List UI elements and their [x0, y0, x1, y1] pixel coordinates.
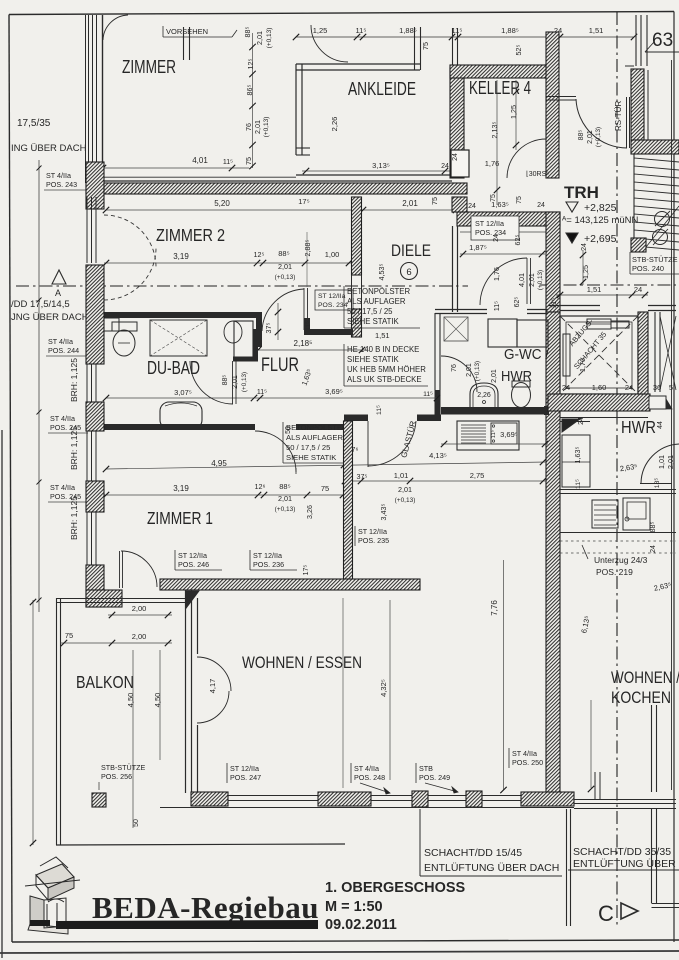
- svg-text:24: 24: [625, 383, 633, 392]
- svg-text:12⁵: 12⁵: [246, 58, 255, 69]
- svg-text:09.02.2011: 09.02.2011: [325, 917, 397, 933]
- svg-text:2,00: 2,00: [132, 632, 147, 641]
- svg-text:Unterzug 24/3: Unterzug 24/3: [594, 555, 648, 565]
- svg-text:11⁵: 11⁵: [551, 298, 558, 308]
- svg-text:1,60: 1,60: [592, 383, 607, 392]
- svg-text:11⁵: 11⁵: [575, 479, 582, 489]
- svg-text:11⁵: 11⁵: [305, 321, 312, 331]
- svg-text:2,01: 2,01: [255, 31, 264, 45]
- svg-text:4,95: 4,95: [211, 459, 227, 468]
- svg-text:50: 50: [285, 426, 292, 434]
- svg-text:88⁵: 88⁵: [578, 130, 585, 141]
- svg-text:37⁵: 37⁵: [264, 322, 273, 333]
- svg-text:STB: STB: [419, 764, 433, 773]
- svg-text:1,51: 1,51: [589, 26, 604, 35]
- svg-text:ALS AUFLAGER: ALS AUFLAGER: [347, 297, 406, 306]
- svg-text:(+0,13): (+0,13): [275, 274, 296, 281]
- svg-text:44: 44: [657, 421, 664, 429]
- svg-text:2,26: 2,26: [330, 117, 339, 132]
- svg-text:(+0,13): (+0,13): [537, 270, 544, 290]
- svg-text:3,07⁵: 3,07⁵: [174, 388, 192, 397]
- svg-text:2,01: 2,01: [466, 363, 473, 377]
- svg-text:ANKLEIDE: ANKLEIDE: [348, 79, 416, 99]
- svg-text:(+0,13): (+0,13): [266, 28, 273, 49]
- svg-text:BETONPOLSTER: BETONPOLSTER: [286, 423, 348, 432]
- svg-text:1,88⁵: 1,88⁵: [501, 26, 519, 35]
- svg-text:1,76: 1,76: [578, 358, 587, 372]
- svg-text:24: 24: [650, 545, 657, 553]
- svg-text:2,18⁵: 2,18⁵: [294, 339, 313, 348]
- svg-text:POS. 244: POS. 244: [48, 346, 79, 355]
- svg-text:11⁵: 11⁵: [376, 405, 383, 415]
- svg-text:50 / 17,5 / 25: 50 / 17,5 / 25: [286, 443, 330, 452]
- svg-text:ST 12/IIa: ST 12/IIa: [475, 219, 504, 228]
- svg-text:M = 1:50: M = 1:50: [325, 899, 383, 915]
- svg-text:24: 24: [578, 417, 585, 425]
- svg-text:WOHNEN / ESSEN: WOHNEN / ESSEN: [242, 653, 362, 672]
- svg-text:88⁵: 88⁵: [243, 26, 252, 37]
- svg-text:1,51: 1,51: [375, 331, 390, 340]
- svg-text:75: 75: [516, 196, 523, 204]
- svg-text:11⁵: 11⁵: [257, 389, 267, 396]
- svg-text:52⁵: 52⁵: [514, 44, 523, 55]
- svg-text:75: 75: [244, 157, 253, 165]
- svg-text:SIEHE STATIK: SIEHE STATIK: [286, 453, 336, 462]
- svg-text:18⁵: 18⁵: [654, 478, 661, 489]
- svg-text:(+0,13): (+0,13): [275, 506, 296, 513]
- svg-text:ZIMMER: ZIMMER: [122, 57, 176, 77]
- svg-text:G-WC /: G-WC /: [504, 346, 550, 363]
- svg-text:76: 76: [451, 364, 458, 372]
- svg-text:ST 4/IIa: ST 4/IIa: [46, 171, 71, 180]
- svg-text:STB-STÜTZE: STB-STÜTZE: [101, 763, 146, 772]
- svg-text:RS-TÜR: RS-TÜR: [614, 101, 623, 131]
- svg-text:ZIMMER 1: ZIMMER 1: [147, 508, 213, 528]
- svg-text:3,69⁵: 3,69⁵: [500, 430, 518, 439]
- svg-text:POS. 243: POS. 243: [46, 180, 77, 189]
- svg-text:17⁵: 17⁵: [303, 565, 310, 576]
- svg-text:75: 75: [430, 197, 439, 205]
- svg-text:FLUR: FLUR: [261, 354, 299, 376]
- svg-text:HWR: HWR: [501, 368, 532, 385]
- svg-text:ST 4/IIa: ST 4/IIa: [50, 483, 75, 492]
- svg-text:88⁵: 88⁵: [222, 375, 229, 386]
- svg-text:17⁵: 17⁵: [298, 197, 309, 206]
- svg-text:3,69⁵: 3,69⁵: [325, 387, 343, 396]
- svg-text:+2,695: +2,695: [584, 233, 617, 245]
- svg-text:1,25: 1,25: [581, 265, 590, 279]
- svg-text:ZIMMER 2: ZIMMER 2: [156, 225, 225, 245]
- svg-text:SIEHE STATIK: SIEHE STATIK: [347, 317, 399, 326]
- svg-text:1,01: 1,01: [394, 471, 409, 480]
- svg-text:KOCHEN: KOCHEN: [611, 688, 671, 707]
- svg-text:3,19: 3,19: [173, 484, 189, 493]
- svg-text:/DD 17,5/14,5: /DD 17,5/14,5: [11, 299, 70, 310]
- svg-text:POS. 249: POS. 249: [419, 773, 450, 782]
- svg-text:3,13⁵: 3,13⁵: [372, 161, 390, 170]
- svg-text:4,01: 4,01: [192, 156, 208, 165]
- svg-text:WOHNEN /: WOHNEN /: [611, 668, 679, 687]
- svg-text:ST 12/IIa: ST 12/IIa: [358, 527, 387, 536]
- svg-text:JNG ÜBER DACH: JNG ÜBER DACH: [11, 312, 89, 323]
- svg-text:2,01: 2,01: [398, 485, 412, 494]
- svg-text:BRH: 1,125: BRH: 1,125: [69, 426, 79, 470]
- svg-text:ST 12/IIa: ST 12/IIa: [253, 551, 282, 560]
- svg-text:2,01: 2,01: [491, 369, 498, 383]
- svg-text:TRH: TRH: [564, 183, 599, 202]
- svg-text:POS. 234: POS. 234: [318, 302, 348, 309]
- svg-text:24: 24: [493, 234, 500, 242]
- svg-text:ST 4/IIa: ST 4/IIa: [512, 749, 537, 758]
- svg-text:POS. 248: POS. 248: [354, 773, 385, 782]
- svg-text:4,13⁵: 4,13⁵: [429, 451, 447, 460]
- svg-text:24: 24: [452, 153, 459, 161]
- svg-text:4,32⁵: 4,32⁵: [379, 679, 388, 697]
- svg-text:11⁵: 11⁵: [223, 159, 233, 166]
- svg-text:POS. 235: POS. 235: [358, 536, 389, 545]
- svg-text:17,5/35: 17,5/35: [17, 118, 51, 129]
- svg-text:11⁵: 11⁵: [356, 26, 367, 35]
- svg-text:2,88⁵: 2,88⁵: [303, 239, 312, 256]
- svg-text:ST 12/IIa: ST 12/IIa: [318, 293, 346, 300]
- svg-text:2,00: 2,00: [132, 604, 147, 613]
- svg-text:24: 24: [581, 243, 588, 251]
- svg-text:6: 6: [406, 267, 411, 278]
- svg-text:ST 12/IIa: ST 12/IIa: [230, 764, 259, 773]
- svg-text:ALS AUFLAGER: ALS AUFLAGER: [286, 433, 343, 442]
- svg-text:4,53⁵: 4,53⁵: [377, 263, 386, 280]
- svg-text:4,17: 4,17: [208, 679, 217, 694]
- svg-text:ST 4/IIa: ST 4/IIa: [354, 764, 379, 773]
- svg-text:ST 4/IIa: ST 4/IIa: [50, 414, 75, 423]
- svg-text:ENTLÜFTUNG ÜBER DACH: ENTLÜFTUNG ÜBER DACH: [424, 862, 559, 874]
- svg-text:50 / 17,5 / 25: 50 / 17,5 / 25: [347, 307, 393, 316]
- svg-text:POS. 250: POS. 250: [512, 758, 543, 767]
- svg-text:1,25: 1,25: [509, 105, 518, 119]
- svg-text:ING ÜBER DACH: ING ÜBER DACH: [11, 143, 87, 154]
- svg-text:1. OBERGESCHOSS: 1. OBERGESCHOSS: [325, 880, 466, 896]
- svg-text:5: 5: [669, 383, 673, 392]
- svg-text:STB-STÜTZE: STB-STÜTZE: [632, 255, 678, 264]
- svg-text:1,63⁵: 1,63⁵: [573, 446, 582, 463]
- svg-text:A: A: [55, 288, 61, 298]
- svg-text:ENTLÜFTUNG ÜBER DA: ENTLÜFTUNG ÜBER DA: [573, 858, 679, 870]
- svg-text:37⁵: 37⁵: [357, 472, 368, 481]
- svg-text:4,01: 4,01: [517, 273, 526, 287]
- svg-text:2,26: 2,26: [477, 392, 491, 399]
- svg-text:C: C: [598, 901, 614, 926]
- svg-text:POS. 219: POS. 219: [596, 567, 633, 577]
- svg-text:1,01: 1,01: [657, 455, 666, 469]
- svg-text:1,87⁵: 1,87⁵: [469, 243, 487, 252]
- svg-text:+2,825: +2,825: [584, 202, 617, 214]
- svg-text:2,01: 2,01: [666, 455, 675, 469]
- svg-text:UK HEB 5MM HÖHER: UK HEB 5MM HÖHER: [347, 365, 426, 374]
- svg-text:HE 140 B IN DECKE: HE 140 B IN DECKE: [347, 345, 419, 354]
- svg-text:(+0,13): (+0,13): [241, 372, 248, 392]
- svg-text:75: 75: [321, 484, 329, 493]
- svg-text:POS. 240: POS. 240: [632, 264, 664, 273]
- svg-text:2,01: 2,01: [253, 120, 262, 134]
- svg-text:ᴬ= 143,125 müNN: ᴬ= 143,125 müNN: [561, 215, 639, 226]
- svg-text:12⁵: 12⁵: [254, 250, 265, 259]
- svg-text:POS. 234: POS. 234: [475, 228, 506, 237]
- svg-text:62⁵: 62⁵: [514, 297, 521, 308]
- svg-text:(+0,13): (+0,13): [395, 497, 416, 504]
- svg-text:1,25: 1,25: [313, 26, 328, 35]
- svg-text:5,20: 5,20: [214, 199, 230, 208]
- svg-text:BRH: 1,125: BRH: 1,125: [69, 358, 79, 402]
- svg-text:3,19: 3,19: [173, 252, 189, 261]
- svg-text:11⁵: 11⁵: [494, 301, 501, 311]
- svg-text:50: 50: [133, 819, 140, 827]
- svg-text:2,13⁵: 2,13⁵: [490, 121, 499, 138]
- svg-text:POS. 236: POS. 236: [253, 560, 284, 569]
- svg-text:76: 76: [244, 123, 253, 131]
- svg-text:24: 24: [468, 203, 476, 210]
- svg-text:11⁵: 11⁵: [490, 429, 497, 438]
- svg-text:1,00: 1,00: [325, 250, 340, 259]
- svg-text:BRH: 1,125: BRH: 1,125: [69, 496, 79, 540]
- svg-text:BEDA-Regiebau: BEDA-Regiebau: [92, 890, 319, 925]
- svg-text:88⁵: 88⁵: [648, 521, 657, 532]
- svg-text:3,43⁵: 3,43⁵: [379, 503, 388, 520]
- svg-text:3,26: 3,26: [305, 505, 314, 519]
- svg-text:62⁵: 62⁵: [513, 234, 522, 245]
- svg-text:24: 24: [634, 285, 642, 294]
- svg-text:BETONPÖLSTER: BETONPÖLSTER: [347, 287, 410, 296]
- svg-text:75: 75: [421, 42, 430, 50]
- svg-text:SIEHE STATIK: SIEHE STATIK: [347, 355, 399, 364]
- svg-text:2,01: 2,01: [232, 375, 239, 389]
- svg-text:ALS UK STB-DECKE: ALS UK STB-DECKE: [347, 375, 422, 384]
- svg-text:63: 63: [652, 30, 673, 51]
- svg-text:24: 24: [562, 383, 570, 392]
- svg-text:KELLER 4: KELLER 4: [469, 77, 531, 98]
- svg-text:88⁵: 88⁵: [278, 249, 289, 258]
- svg-text:DIELE: DIELE: [391, 242, 431, 260]
- svg-text:7,76: 7,76: [490, 600, 499, 616]
- svg-text:2,01: 2,01: [402, 199, 418, 208]
- svg-text:1,51: 1,51: [587, 285, 602, 294]
- svg-text:POS. 246: POS. 246: [178, 560, 209, 569]
- svg-text:24: 24: [537, 202, 545, 209]
- svg-text:ST 4/IIa: ST 4/IIa: [48, 337, 73, 346]
- svg-text:ST 12/IIa: ST 12/IIa: [178, 551, 207, 560]
- svg-text:HWR: HWR: [621, 417, 656, 437]
- svg-text:11⁵: 11⁵: [423, 391, 433, 398]
- svg-text:2,75: 2,75: [470, 471, 485, 480]
- svg-text:12⁶: 12⁶: [255, 482, 266, 491]
- svg-text:BALKON: BALKON: [76, 672, 134, 692]
- svg-text:75: 75: [490, 194, 497, 202]
- svg-text:POS. 256: POS. 256: [101, 772, 132, 781]
- svg-text:⌊30RS⁵: ⌊30RS⁵: [526, 170, 549, 178]
- svg-text:4,50: 4,50: [126, 693, 135, 708]
- svg-text:VORSEHEN: VORSEHEN: [166, 27, 208, 36]
- svg-text:POS. 247: POS. 247: [230, 773, 261, 782]
- svg-text:4,50: 4,50: [153, 693, 162, 708]
- svg-text:(+0,13): (+0,13): [474, 361, 481, 381]
- svg-text:SCHACHT/DD 15/45: SCHACHT/DD 15/45: [424, 847, 522, 859]
- svg-text:(+0,13): (+0,13): [263, 117, 270, 138]
- svg-text:88⁵: 88⁵: [279, 482, 290, 491]
- svg-text:75: 75: [65, 631, 73, 640]
